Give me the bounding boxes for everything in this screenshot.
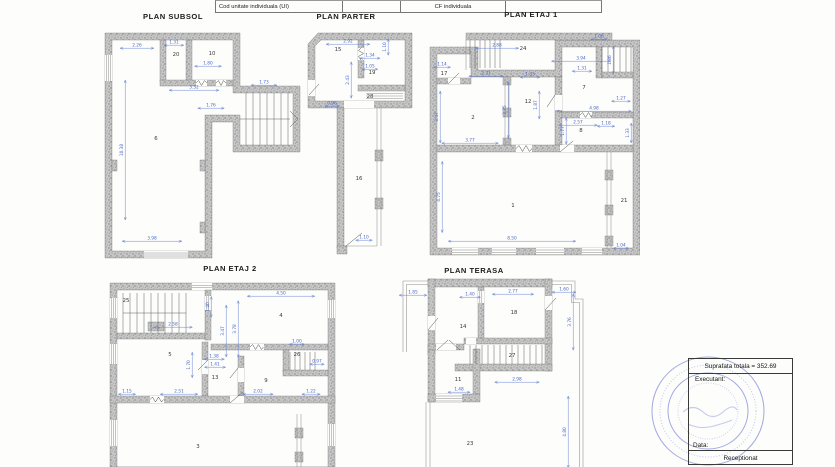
dimension-label: 4.80 bbox=[562, 427, 568, 437]
data-label: Data: bbox=[693, 442, 708, 449]
room-number: 1 bbox=[511, 203, 514, 209]
dimension-label: 2.58 bbox=[168, 322, 178, 328]
room-number: 6 bbox=[154, 136, 158, 142]
subsol-annotations: 201062.261.311.803.321.761.7310.383.98 bbox=[119, 40, 277, 243]
parter-walls bbox=[308, 33, 412, 254]
dimension-label: 1.73 bbox=[259, 80, 269, 86]
dimension-label: 3.98 bbox=[147, 236, 157, 242]
room-number: 21 bbox=[621, 198, 628, 204]
plan-parter-drawing: 151928162.921.341.051.102.430.961.10 bbox=[303, 28, 418, 260]
etaj1-walls bbox=[430, 33, 640, 255]
room-number: 24 bbox=[520, 46, 527, 52]
title-plan-subsol: PLAN SUBSOL bbox=[125, 12, 221, 21]
title-plan-terasa: PLAN TERASA bbox=[426, 266, 522, 275]
dimension-label: 3.76 bbox=[567, 317, 573, 327]
dimension-label: 3.94 bbox=[576, 56, 586, 62]
dimension-label: 2.26 bbox=[132, 43, 142, 49]
dimension-label: 2.43 bbox=[345, 75, 351, 85]
dimension-label: 1.85 bbox=[408, 290, 418, 296]
dimension-label: 1.38 bbox=[209, 354, 219, 360]
dimension-label: 3.77 bbox=[465, 138, 475, 144]
plan-terasa-drawing: 14182711231.851.402.771.603.762.981.484.… bbox=[398, 276, 593, 467]
dimension-label: 1.31 bbox=[577, 66, 587, 72]
dimension-label: 3.78 bbox=[232, 324, 238, 334]
room-number: 20 bbox=[173, 52, 180, 58]
dimension-label: 3.47 bbox=[220, 326, 226, 336]
title-plan-etaj-1: PLAN ETAJ 1 bbox=[483, 10, 579, 19]
dimension-label: 1.31 bbox=[169, 40, 179, 46]
dimension-label: 1.04 bbox=[616, 243, 626, 249]
room-number: 15 bbox=[335, 47, 342, 53]
room-number: 11 bbox=[455, 377, 462, 383]
room-number: 9 bbox=[264, 378, 268, 384]
plan-etaj2-drawing: 25451392634.502.581.403.473.781.000.971.… bbox=[105, 276, 340, 467]
dimension-label: 1.06 bbox=[594, 34, 604, 40]
dimension-label: 1.34 bbox=[365, 53, 375, 59]
dimension-label: 1.33 bbox=[525, 72, 535, 78]
room-number: 5 bbox=[168, 352, 171, 358]
room-number: 27 bbox=[509, 353, 516, 359]
receptionat-row: Receptionat bbox=[689, 451, 792, 465]
room-number: 25 bbox=[123, 298, 130, 304]
dimension-label: 3.75 bbox=[502, 105, 508, 115]
room-number: 16 bbox=[356, 176, 363, 182]
dimension-label: 1.87 bbox=[533, 100, 539, 110]
total-area-row: Suprafata totala = 352.69 bbox=[689, 359, 792, 374]
room-number: 14 bbox=[460, 324, 467, 330]
parter-glazing bbox=[377, 108, 381, 246]
dimension-label: 3.47 bbox=[434, 112, 440, 122]
scanned-floor-plan-page: Cod unitate individuala (UI) CF individu… bbox=[0, 0, 835, 467]
dimension-label: 1.41 bbox=[210, 362, 220, 368]
dimension-label: 1.48 bbox=[454, 387, 464, 393]
dimension-label: 0.97 bbox=[312, 359, 322, 365]
dimension-label: 1.10 bbox=[359, 235, 369, 241]
dimension-label: 2.92 bbox=[343, 39, 353, 45]
executant-row: Executant: Data: bbox=[689, 374, 792, 451]
total-area-text: Suprafata totala = 352.69 bbox=[705, 363, 777, 370]
dimension-label: 1.80 bbox=[203, 61, 213, 67]
dimension-label: 1.40 bbox=[205, 302, 211, 312]
dimension-label: 1.33 bbox=[625, 128, 631, 138]
dimension-label: 1.15 bbox=[122, 389, 132, 395]
room-number: 13 bbox=[212, 375, 219, 381]
room-number: 7 bbox=[582, 85, 585, 91]
room-number: 17 bbox=[441, 71, 448, 77]
dimension-label: 1.14 bbox=[437, 62, 447, 68]
executant-label: Executant: bbox=[695, 376, 725, 383]
dimension-label: 1.18 bbox=[601, 121, 611, 127]
subsol-staircase bbox=[240, 93, 298, 145]
room-number: 26 bbox=[294, 352, 301, 358]
dimension-label: 2.57 bbox=[573, 120, 583, 126]
dimension-label: 1.27 bbox=[616, 96, 626, 102]
dimension-label: 2.31 bbox=[481, 71, 491, 77]
parter-annotations: 151928162.921.341.051.102.430.961.10 bbox=[325, 39, 390, 242]
table-cell-cod-unitate: Cod unitate individuala (UI) bbox=[216, 1, 343, 12]
room-number: 19 bbox=[369, 70, 376, 76]
room-number: 28 bbox=[367, 94, 374, 100]
terasa-staircase bbox=[470, 345, 542, 364]
dimension-label: 1.77 bbox=[560, 126, 566, 136]
dimension-label: 1.60 bbox=[559, 287, 569, 293]
room-number: 4 bbox=[279, 313, 283, 319]
room-number: 12 bbox=[525, 99, 532, 105]
dimension-label: 1.00 bbox=[292, 339, 302, 345]
room-number: 2 bbox=[471, 115, 474, 121]
dimension-label: 2.98 bbox=[512, 377, 522, 383]
subsol-walls bbox=[105, 33, 300, 258]
dimension-label: 1.70 bbox=[186, 360, 192, 370]
parter-doors bbox=[309, 48, 364, 246]
room-number: 23 bbox=[467, 441, 474, 447]
etaj1-annotations: 2417212781212.883.941.061.142.311.331.31… bbox=[433, 34, 632, 250]
dimension-label: 2.51 bbox=[174, 389, 184, 395]
dimension-label: 8.50 bbox=[507, 236, 517, 242]
terasa-walls bbox=[428, 279, 552, 402]
dimension-label: 1.40 bbox=[465, 292, 475, 298]
dimension-label: 2.88 bbox=[492, 43, 502, 49]
dimension-label: 4.75 bbox=[436, 192, 442, 202]
etaj1-glazing bbox=[452, 80, 611, 255]
room-number: 18 bbox=[511, 310, 518, 316]
dimension-label: 1.22 bbox=[306, 389, 316, 395]
plan-etaj1-drawing: 2417212781212.883.941.061.142.311.331.31… bbox=[425, 28, 640, 264]
dimension-label: 1.76 bbox=[206, 103, 216, 109]
dimension-label: 4.98 bbox=[589, 106, 599, 112]
dimension-label: 4.50 bbox=[276, 291, 286, 297]
parter-steps bbox=[344, 94, 403, 247]
dimension-label: 2.77 bbox=[508, 289, 518, 295]
room-number: 10 bbox=[209, 51, 216, 57]
table-cell-empty-1 bbox=[343, 1, 401, 12]
dimension-label: 10.38 bbox=[119, 144, 125, 157]
dimension-label: 3.32 bbox=[189, 85, 199, 91]
dimension-label: 1.05 bbox=[365, 64, 375, 70]
title-plan-parter: PLAN PARTER bbox=[298, 12, 394, 21]
dimension-label: 1.10 bbox=[382, 42, 388, 52]
receptionat-label: Receptionat bbox=[723, 455, 757, 462]
dimension-label: 0.96 bbox=[327, 101, 337, 107]
etaj1-doors bbox=[448, 40, 592, 152]
room-number: 8 bbox=[579, 128, 583, 134]
dimension-label: 2.02 bbox=[253, 389, 263, 395]
dimension-label: 1.86 bbox=[607, 55, 613, 65]
info-box: Suprafata totala = 352.69 Executant: Dat… bbox=[688, 358, 793, 465]
room-number: 3 bbox=[196, 444, 199, 450]
title-plan-etaj-2: PLAN ETAJ 2 bbox=[182, 264, 278, 273]
plan-subsol-drawing: 201062.261.311.803.321.761.7310.383.98 bbox=[100, 28, 305, 264]
